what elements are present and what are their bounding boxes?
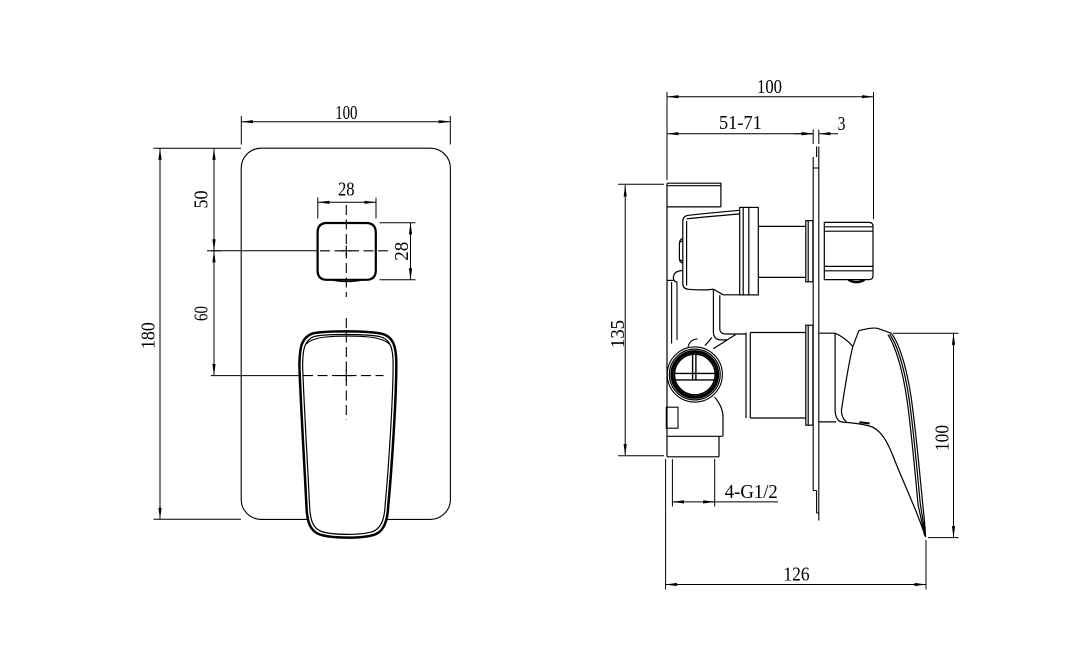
svg-text:3: 3: [838, 113, 846, 135]
svg-text:50: 50: [192, 191, 213, 209]
svg-text:28: 28: [338, 180, 355, 201]
svg-text:100: 100: [932, 425, 954, 451]
svg-text:28: 28: [392, 242, 413, 261]
svg-text:51-71: 51-71: [719, 112, 762, 134]
svg-text:4-G1/2: 4-G1/2: [725, 481, 778, 503]
svg-text:100: 100: [757, 76, 782, 98]
svg-text:100: 100: [335, 102, 357, 124]
svg-text:135: 135: [608, 320, 629, 348]
svg-text:60: 60: [192, 306, 213, 321]
svg-text:180: 180: [139, 322, 160, 349]
svg-text:126: 126: [783, 563, 809, 585]
